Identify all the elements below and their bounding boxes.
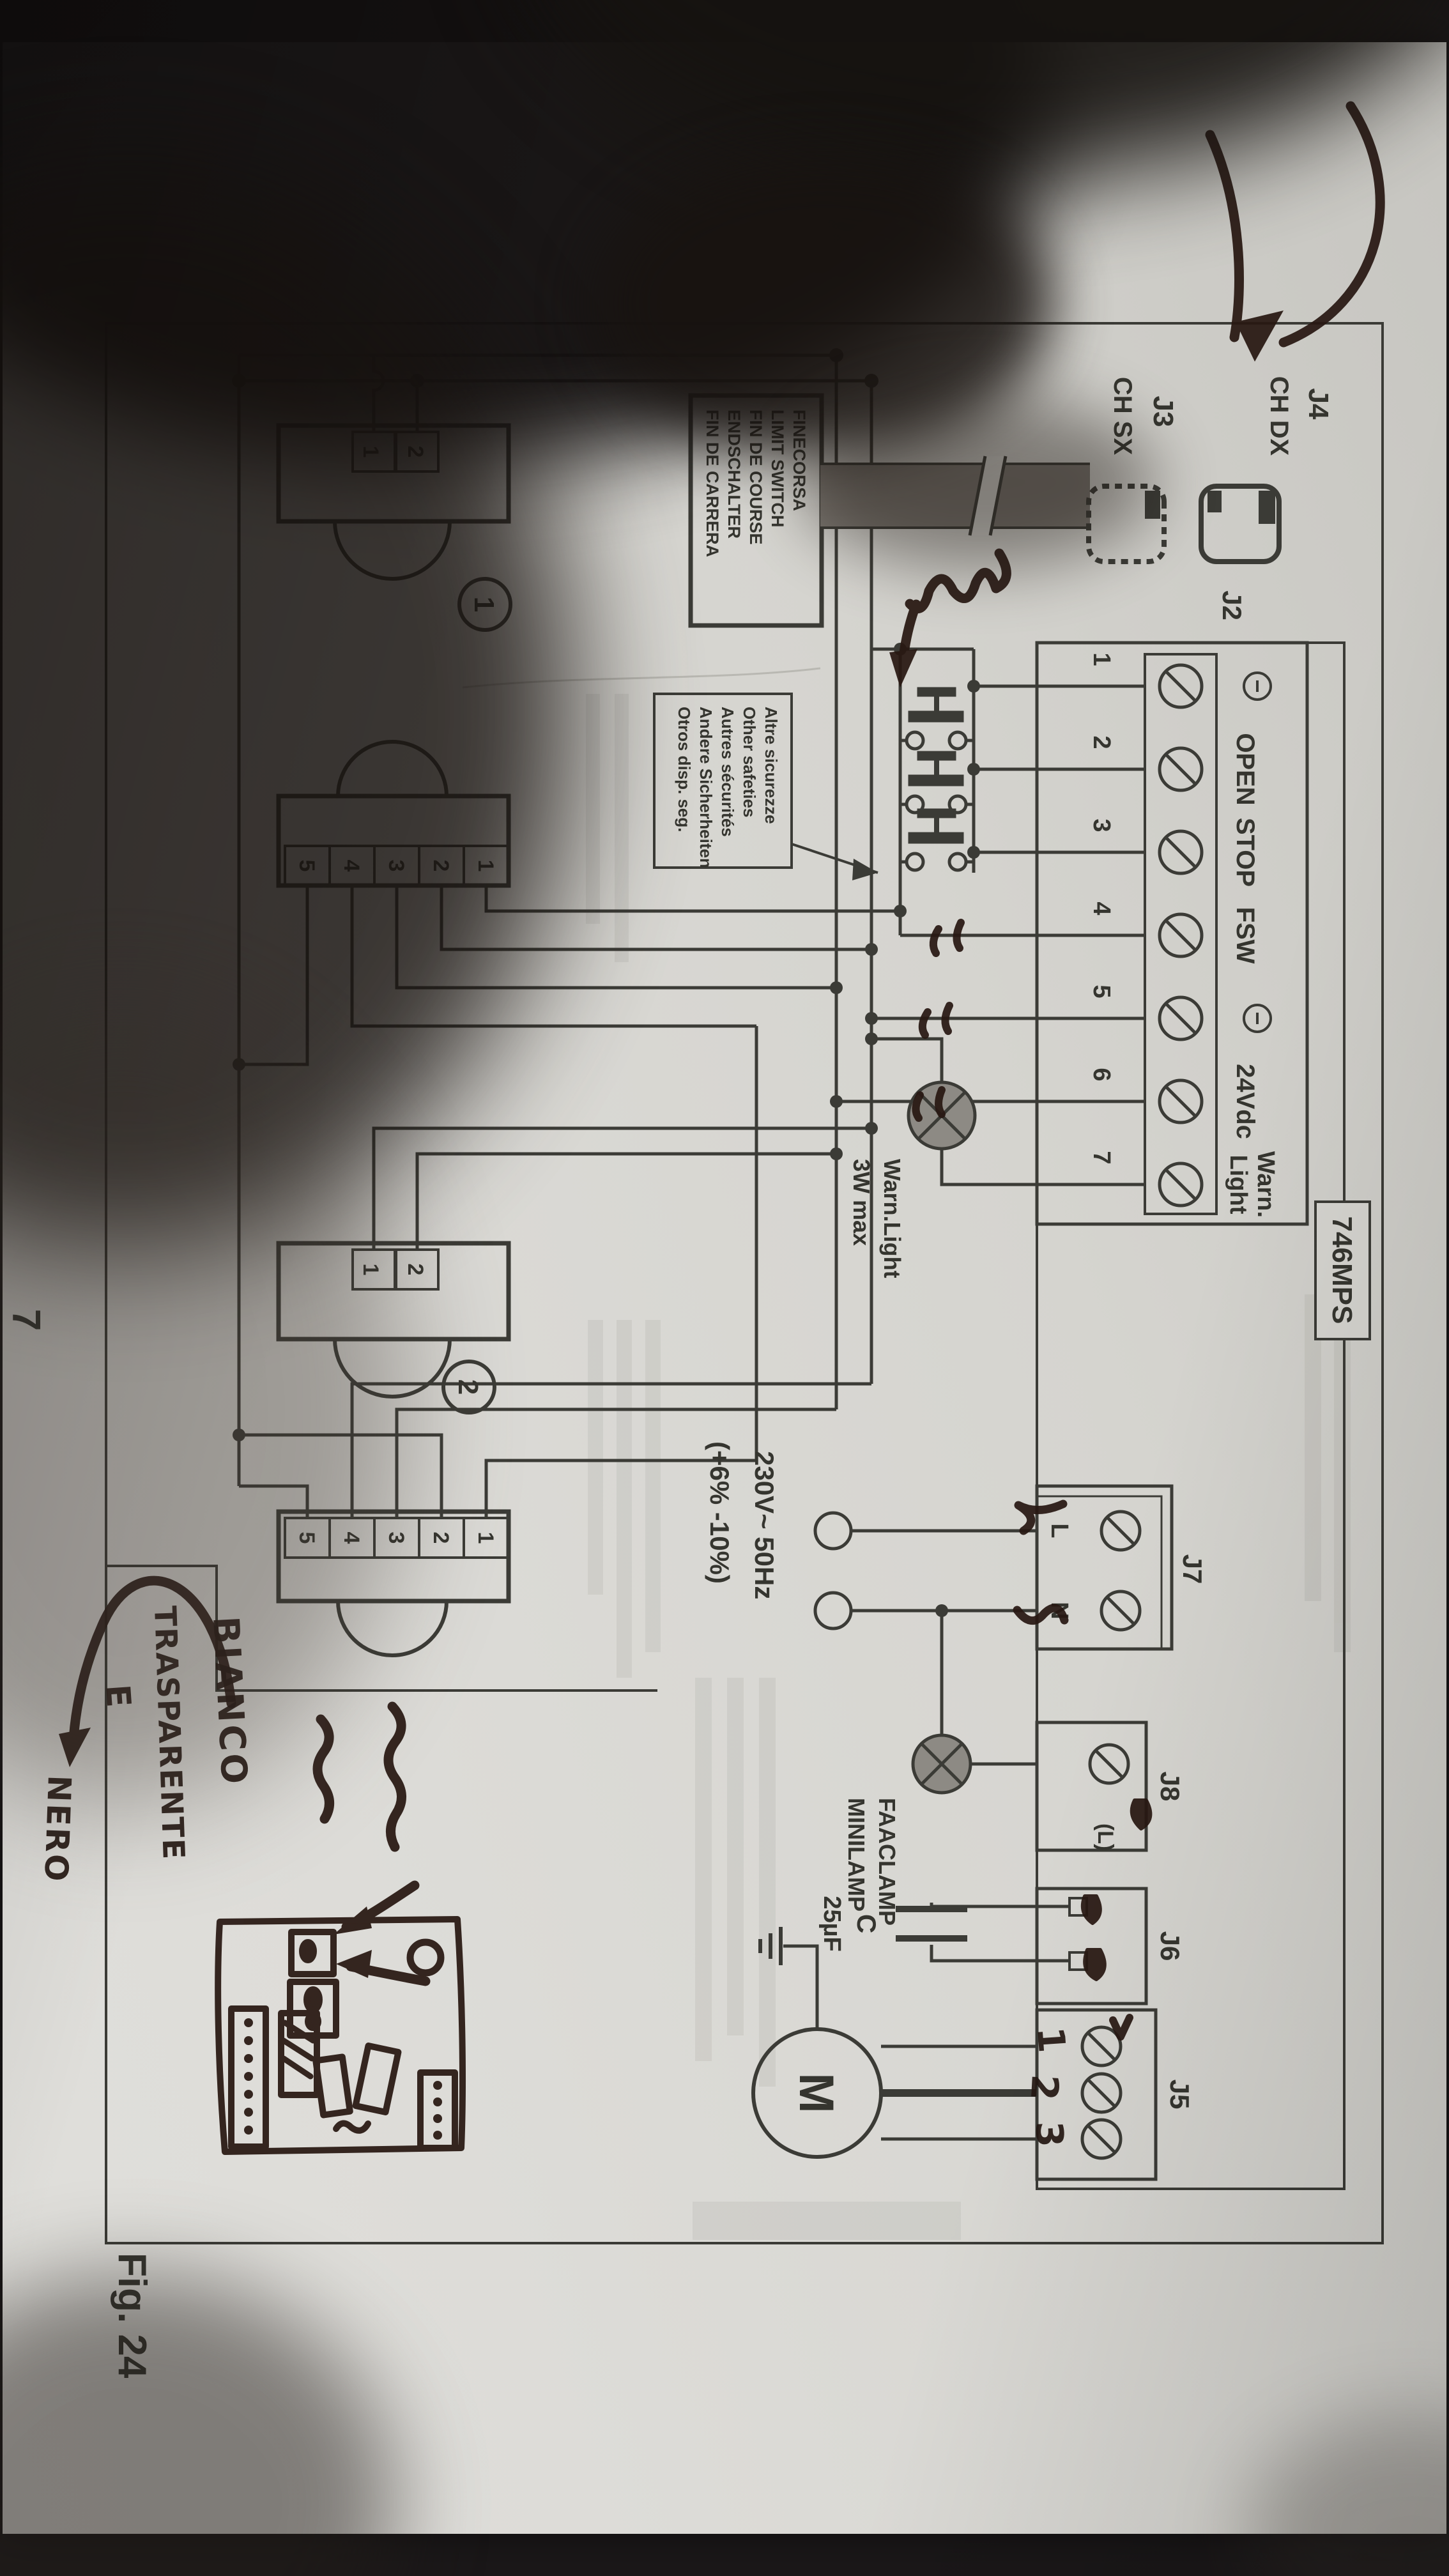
j2-n4: 4 [1088,901,1115,915]
j2-n6: 6 [1088,1068,1115,1081]
j6-mark-1 [1083,1896,1100,1923]
svg-text:Autres sécurités: Autres sécurités [718,707,737,837]
j3-connector-icon [1089,486,1164,562]
wire-tick-1 [933,923,961,953]
rx2-numbers: 1 2 3 4 5 [295,1532,498,1544]
svg-text:2: 2 [429,1532,453,1544]
j8-label: J8 [1155,1772,1185,1802]
capacitor-label: C [852,1914,882,1933]
faaclamp-icon [913,1735,970,1793]
board-model: 746MPS [1326,1216,1358,1324]
manual-page: J4 CH DX J3 CH SX J2 OPEN STOP FSW 24Vdc… [3,42,1446,2534]
svg-text:Andere Sicherheiten: Andere Sicherheiten [696,707,716,868]
j6-label: J6 [1155,1931,1185,1961]
junction-dots [232,348,980,1617]
j2-n3: 3 [1088,818,1115,832]
diagram-lineart [106,323,1383,2243]
pair2-badge: 2 [452,1379,484,1395]
svg-text:Otros disp. seg.: Otros disp. seg. [675,707,694,832]
svg-text:4: 4 [339,1532,364,1544]
tx1-t1: 1 [358,446,383,458]
hand-drawn-connector-sketch [218,1919,463,2152]
j4-label: J4 [1303,388,1334,420]
svg-text:Other safeties: Other safeties [740,707,759,817]
j6-mark-2 [1085,1950,1105,1979]
paper-crease [463,668,820,687]
j3-label: J3 [1147,396,1179,427]
warnlight-line1: Warn.Light [879,1159,905,1278]
safety-contact [900,810,974,870]
limit-switch-text: FINECORSA LIMIT SWITCH FIN DE COURSE END… [703,410,809,557]
j5-mark [1113,2018,1130,2037]
hw-trasparente: TRASPARENTE [147,1605,191,1860]
j2-n5: 5 [1088,985,1115,998]
photocell-tx2 [279,1243,509,1397]
j2-n2: 2 [1088,735,1115,749]
j3-sub: CH SX [1108,377,1137,456]
supply-tolerance: (+6% -10%) [705,1441,735,1584]
hw-j5-2: 2 [1022,2073,1067,2101]
warnlight-line2: 3W max [848,1159,875,1246]
svg-text:3: 3 [384,1532,408,1544]
pair1-badge: 1 [468,597,500,612]
wire-tick-2 [923,1006,949,1035]
j2-warn-1: Warn. [1252,1151,1279,1218]
hw-j5-1: 1 [1029,2025,1074,2054]
supply-voltage: 230V~ 50Hz [749,1451,779,1599]
j2-fsw: FSW [1231,907,1259,964]
j4-sub: CH DX [1265,376,1293,456]
j8-terminal: (L) [1093,1823,1117,1851]
open-contact [900,689,974,749]
svg-text:5: 5 [295,1532,319,1544]
faaclamp-line1: FAACLAMP [874,1798,900,1926]
j4-arrowhead [1236,310,1284,362]
photo-of-manual-page: J4 CH DX J3 CH SX J2 OPEN STOP FSW 24Vdc… [0,0,1449,2576]
rx1-numbers: 1 2 3 4 5 [295,860,498,872]
j2-24vdc: 24Vdc [1231,1064,1259,1139]
j8-mark [1132,1800,1151,1828]
safeties-text: Altre sicurezze Other safeties Autres sé… [675,707,781,868]
figure-caption: Fig. 24 [110,2253,154,2379]
hw-nero: NERO [37,1775,78,1884]
j2-warn-2: Light [1225,1155,1252,1215]
svg-text:ENDSCHALTER: ENDSCHALTER [724,410,744,539]
page-number: 7 [4,1309,48,1331]
faaclamp-line2: MINILAMP [843,1798,870,1912]
svg-text:1: 1 [473,1532,498,1544]
svg-text:5: 5 [295,860,319,872]
svg-text:2: 2 [429,860,453,872]
hw-e: E [98,1683,137,1709]
svg-text:4: 4 [339,860,364,872]
j2-label: J2 [1217,590,1247,620]
svg-text:LIMIT SWITCH: LIMIT SWITCH [768,410,787,527]
j8-block [1037,1722,1146,1850]
j5-label: J5 [1165,2080,1195,2110]
j4-arrow [1284,106,1380,342]
capacitor-value: 25µF [818,1896,845,1951]
svg-text:FIN DE COURSE: FIN DE COURSE [746,410,765,545]
ribbon-cable [820,464,1090,528]
j2-screw-terminals [1160,665,1202,1206]
scribble-note [910,553,1006,609]
j2-block [1037,643,1307,1224]
supply-terminal-2 [815,1593,851,1629]
wiring-diagram: J4 CH DX J3 CH SX J2 OPEN STOP FSW 24Vdc… [3,42,1446,2534]
push-button-contacts [900,689,974,870]
photocell-tx1 [279,425,509,579]
j2-n7: 7 [1088,1151,1115,1164]
scribble-word-2 [318,1719,330,1819]
j2-stop: STOP [1231,818,1259,887]
supply-terminal-1 [815,1513,851,1549]
j4-connector-icon [1201,486,1279,562]
handwritten-wire-colors: BIANCO TRASPARENTE E NERO 1 2 3 [37,1605,1074,2147]
capacitor-icon [896,1909,967,1938]
scribble-word-1 [388,1706,402,1847]
stop-contact [900,753,974,813]
svg-text:Altre sicurezze: Altre sicurezze [762,707,781,824]
board-outline [1037,643,1344,2189]
svg-text:FINECORSA: FINECORSA [790,410,809,511]
j2-open: OPEN [1231,733,1259,805]
j2-n1: 1 [1088,652,1115,666]
figure-frame [106,323,1383,2243]
svg-text:3: 3 [384,860,408,872]
tx2-t1: 1 [358,1264,383,1276]
motor-label: M [789,2073,843,2113]
tx1-t2: 2 [403,446,427,458]
hw-j5-3: 3 [1027,2120,1071,2148]
j7-label: J7 [1177,1554,1207,1584]
svg-text:FIN DE CARRERA: FIN DE CARRERA [703,410,722,557]
j7-L: L [1046,1523,1073,1538]
svg-text:1: 1 [473,860,498,872]
tx2-t2: 2 [403,1264,427,1276]
hw-bianco: BIANCO [204,1615,255,1787]
